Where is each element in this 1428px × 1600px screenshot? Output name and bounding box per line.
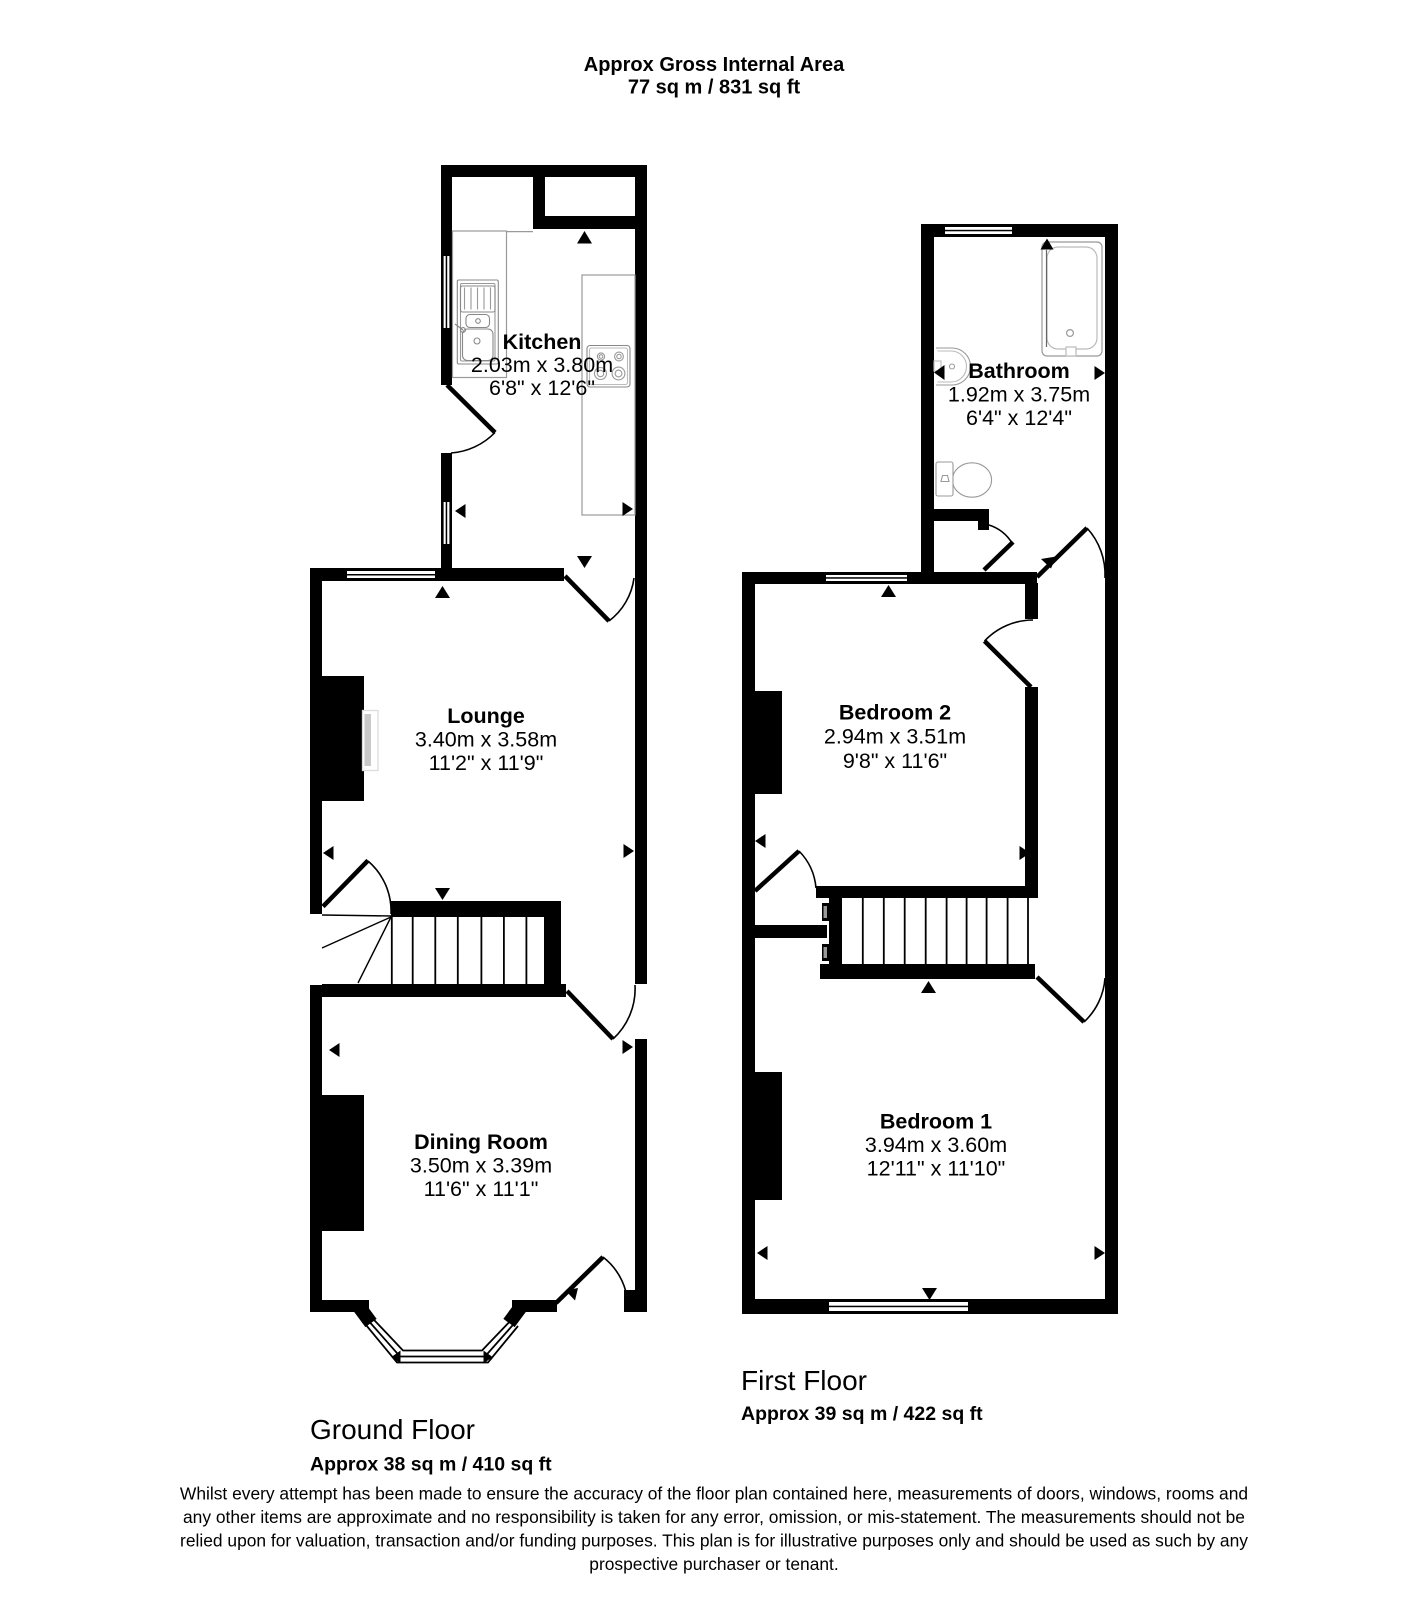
svg-text:3.50m x 3.39m: 3.50m x 3.39m [410,1154,552,1178]
svg-text:1.92m x 3.75m: 1.92m x 3.75m [948,383,1090,407]
svg-text:Dining Room: Dining Room [414,1130,548,1154]
svg-text:Bedroom 1: Bedroom 1 [880,1110,992,1134]
svg-text:6'4" x 12'4": 6'4" x 12'4" [966,406,1072,430]
svg-text:12'11" x 11'10": 12'11" x 11'10" [867,1157,1006,1181]
svg-text:77 sq m / 831 sq ft: 77 sq m / 831 sq ft [628,77,801,99]
svg-text:Approx 39 sq m / 422 sq ft: Approx 39 sq m / 422 sq ft [741,1403,983,1425]
svg-text:Whilst every attempt has been: Whilst every attempt has been made to en… [180,1484,1248,1504]
svg-text:2.94m x 3.51m: 2.94m x 3.51m [824,725,966,749]
svg-text:Approx 38 sq m / 410 sq ft: Approx 38 sq m / 410 sq ft [310,1454,552,1476]
svg-text:Ground Floor: Ground Floor [310,1414,475,1445]
svg-text:Approx Gross Internal Area: Approx Gross Internal Area [584,54,845,76]
svg-text:Lounge: Lounge [447,704,525,728]
svg-text:First Floor: First Floor [741,1365,867,1396]
svg-text:any other items are approximat: any other items are approximate and no r… [183,1507,1245,1527]
svg-text:3.40m x 3.58m: 3.40m x 3.58m [415,728,557,752]
svg-text:3.94m x 3.60m: 3.94m x 3.60m [865,1133,1007,1157]
svg-text:Bathroom: Bathroom [968,359,1070,383]
svg-text:9'8" x 11'6": 9'8" x 11'6" [843,749,947,773]
svg-text:relied upon for valuation, tra: relied upon for valuation, transaction a… [180,1531,1248,1551]
svg-text:11'6" x 11'1": 11'6" x 11'1" [424,1177,539,1201]
svg-text:Bedroom 2: Bedroom 2 [839,701,951,725]
svg-text:Kitchen: Kitchen [503,330,582,354]
svg-text:prospective purchaser or tenan: prospective purchaser or tenant. [589,1554,838,1574]
svg-text:2.03m x 3.80m: 2.03m x 3.80m [471,353,613,377]
svg-text:6'8" x 12'6": 6'8" x 12'6" [489,376,595,400]
svg-text:11'2" x 11'9": 11'2" x 11'9" [429,751,544,775]
